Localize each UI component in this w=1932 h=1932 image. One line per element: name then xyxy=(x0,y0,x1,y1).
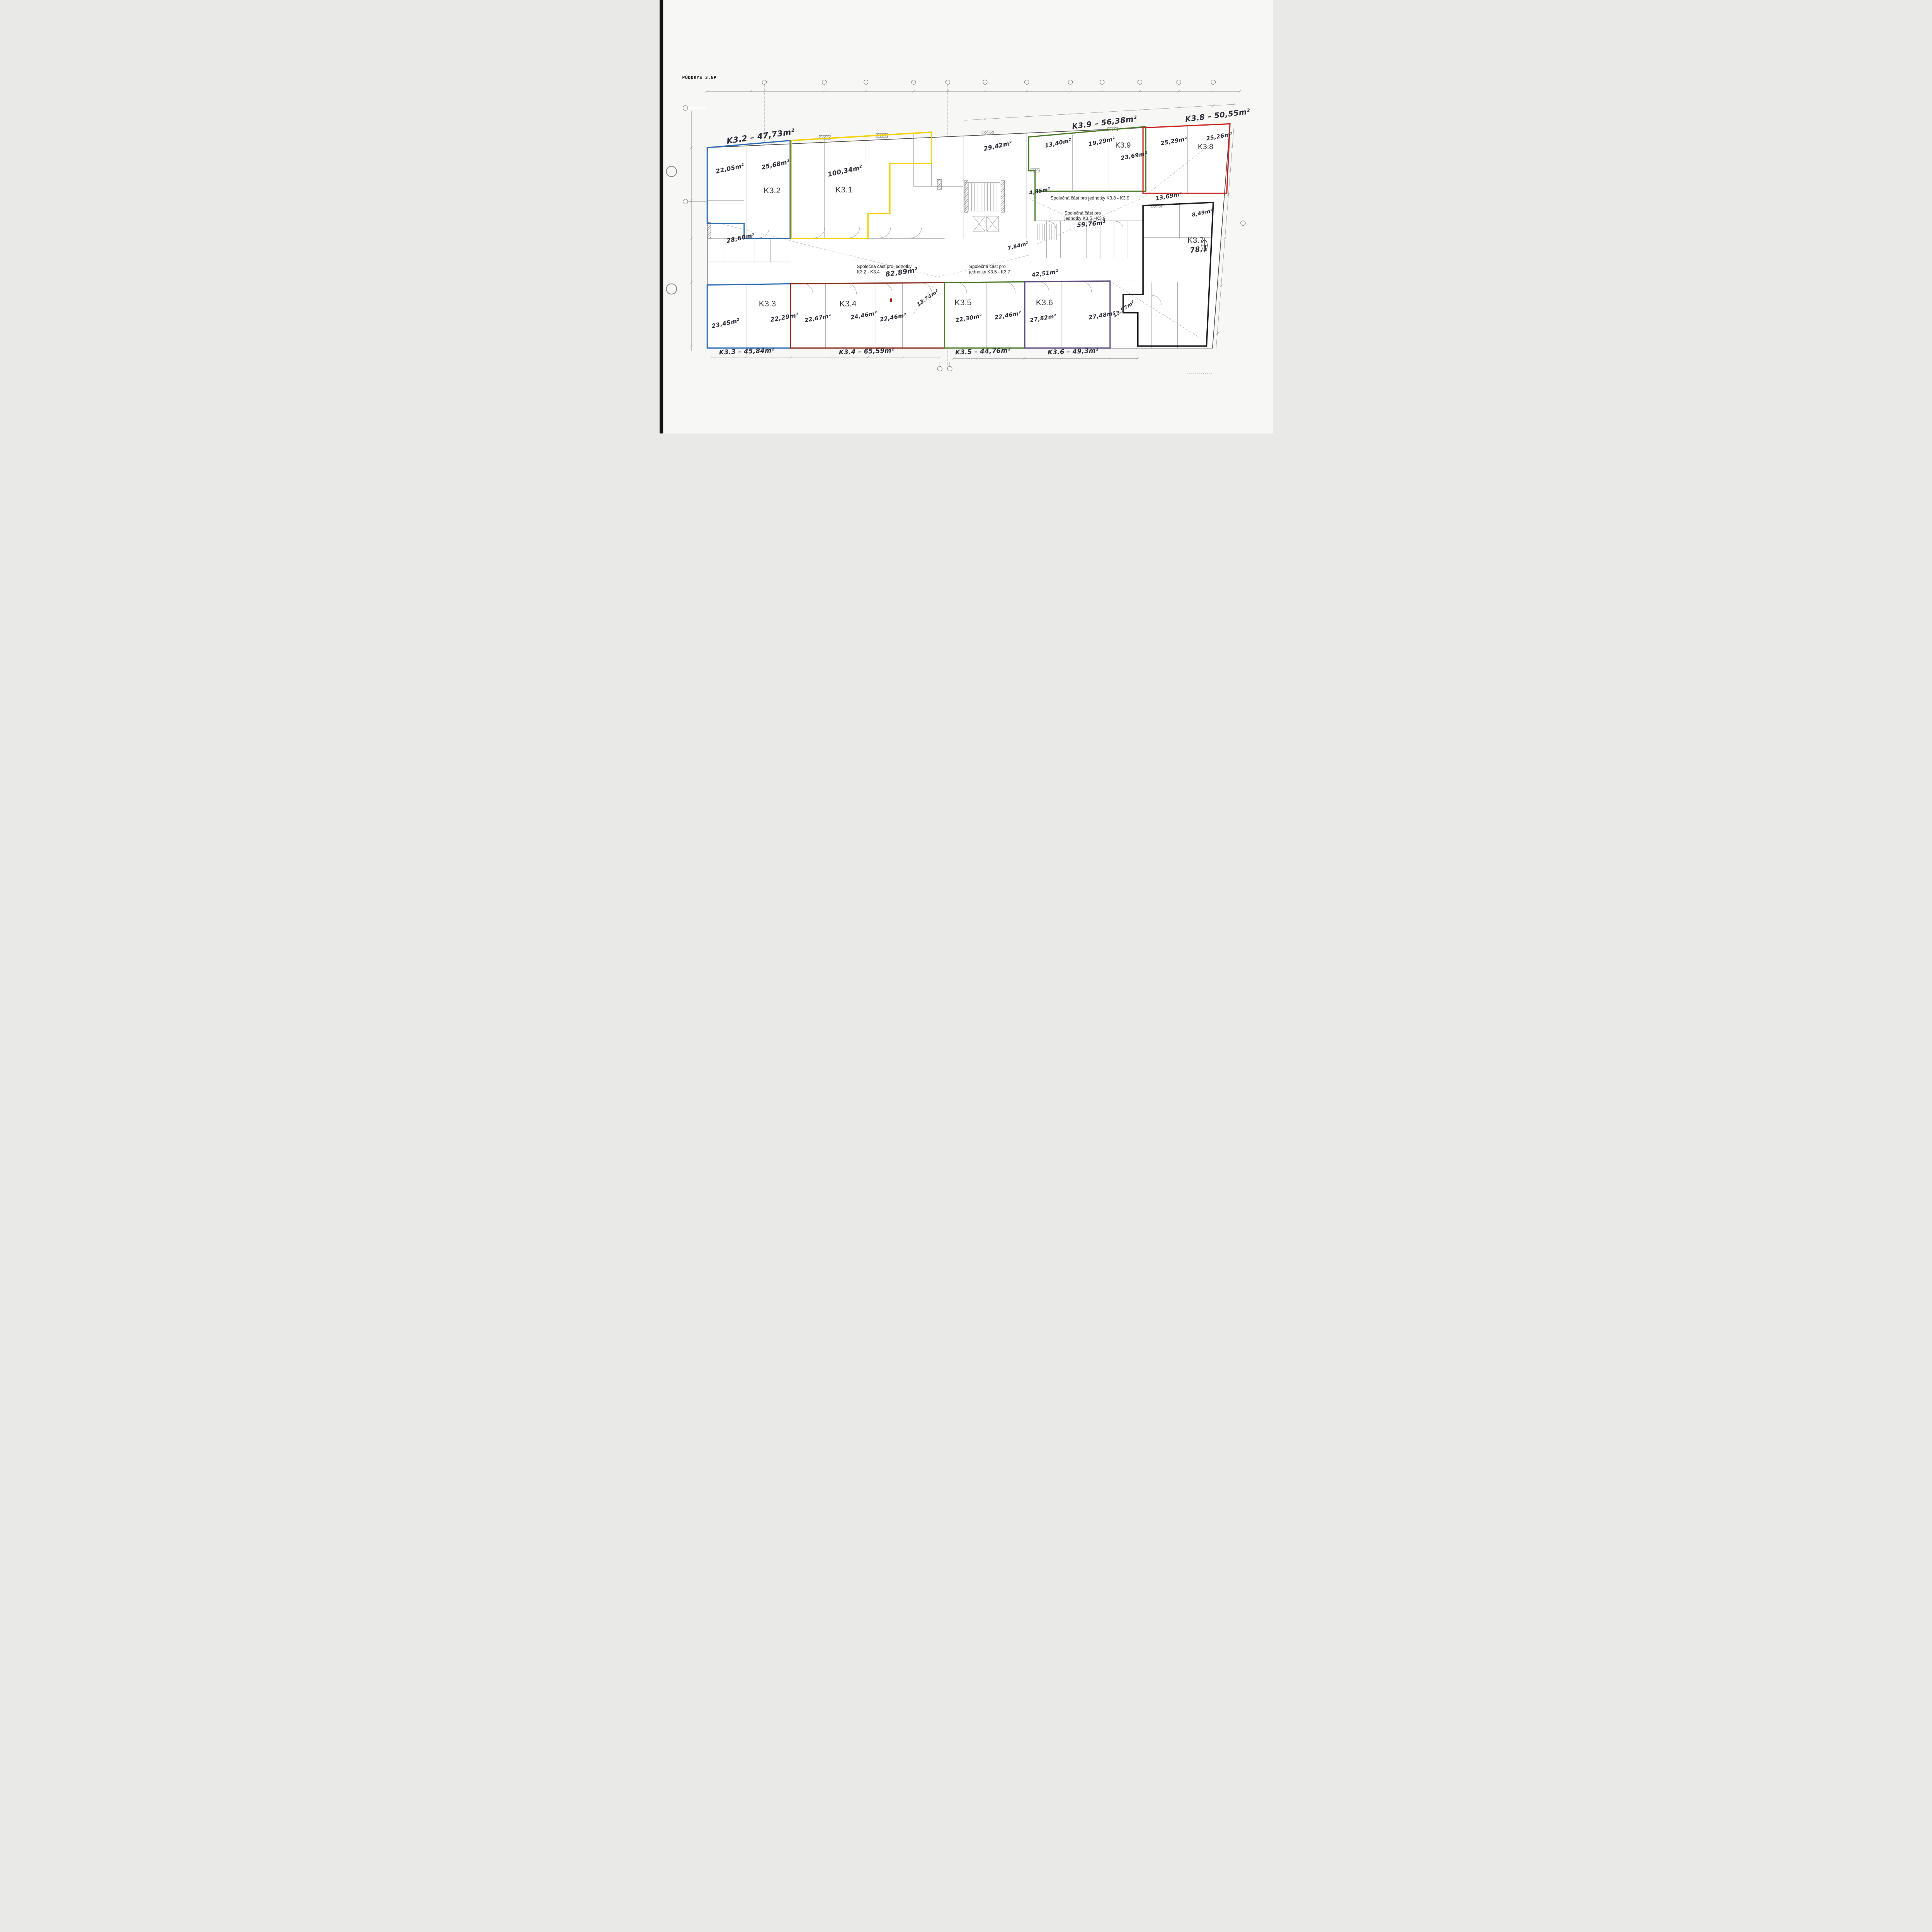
unit-label-k38: K3.8 xyxy=(1197,143,1213,151)
page-title: PŮDORYS 3.NP xyxy=(682,75,716,80)
floor-plan-drawing: PŮDORYS 3.NP xyxy=(660,0,1273,434)
unit-label-k34: K3.4 xyxy=(839,299,856,308)
unit-label-k32: K3.2 xyxy=(764,185,781,195)
unit-total-k35: K3.5 – 44,76m² xyxy=(955,347,1010,356)
unit-label-k36: K3.6 xyxy=(1036,298,1053,307)
unit-label-k35: K3.5 xyxy=(954,298,971,307)
common-area-note-k38-k39: Společná část pro jednotky K3.8 - K3.9 xyxy=(1050,196,1129,201)
unit-label-k33: K3.3 xyxy=(759,299,776,308)
unit-total-k33: K3.3 – 45,84m² xyxy=(719,347,774,356)
common-area-note-k35-k37-line1: Společná část pro xyxy=(969,264,1006,269)
common-area-note-k35-k39-line1: Společná část pro xyxy=(1064,211,1101,216)
unit-total-k36: K3.6 – 49,3m² xyxy=(1048,347,1099,356)
common-area-note-k35-k37-line2: jednotky K3.5 - K3.7 xyxy=(969,269,1010,275)
unit-label-k31: K3.1 xyxy=(835,185,852,194)
red-marker xyxy=(889,298,892,302)
unit-total-k34: K3.4 – 65,59m² xyxy=(838,347,894,356)
unit-total-k38: K3.8 – 50,55m² xyxy=(1184,107,1250,124)
punch-hole-icon xyxy=(666,284,677,294)
unit-label-k37: K3.7 xyxy=(1187,236,1204,245)
common-area-note-k32-k34-line2: K3.2 - K3.4 xyxy=(857,269,879,275)
scan-edge-bar xyxy=(660,0,663,434)
scanned-floor-plan-page: PŮDORYS 3.NP xyxy=(660,0,1273,434)
unit-label-k39: K3.9 xyxy=(1115,141,1131,150)
punch-hole-icon xyxy=(666,166,677,177)
